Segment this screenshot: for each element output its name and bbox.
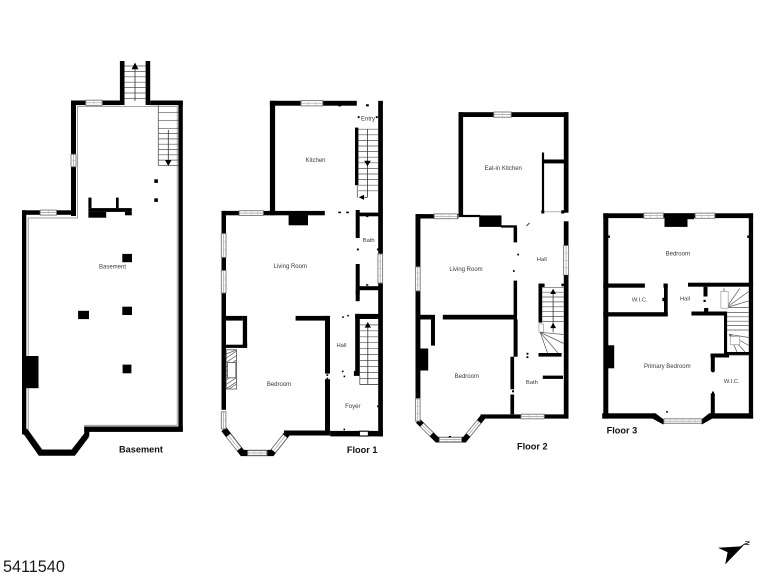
svg-text:Bath: Bath: [526, 380, 538, 386]
svg-text:N: N: [743, 541, 750, 546]
svg-text:Living Room: Living Room: [449, 267, 482, 273]
svg-text:Kitchen: Kitchen: [305, 158, 325, 164]
svg-text:W.I.C.: W.I.C.: [632, 298, 648, 304]
svg-text:Hall: Hall: [680, 297, 690, 303]
svg-text:Bedroom: Bedroom: [455, 374, 479, 380]
svg-text:Hall: Hall: [537, 257, 547, 263]
svg-text:Foyer: Foyer: [345, 404, 360, 410]
svg-text:Bath: Bath: [363, 238, 375, 244]
svg-text:Entry: Entry: [361, 117, 375, 123]
svg-text:Basement: Basement: [99, 265, 126, 271]
svg-text:Bedroom: Bedroom: [666, 252, 690, 258]
svg-text:Primary Bedroom: Primary Bedroom: [644, 364, 691, 370]
svg-text:Floor 2: Floor 2: [517, 441, 548, 451]
svg-text:Eat-in Kitchen: Eat-in Kitchen: [485, 166, 522, 172]
svg-text:Floor 1: Floor 1: [347, 445, 378, 455]
svg-text:W.I.C.: W.I.C.: [724, 379, 740, 385]
svg-text:Floor 3: Floor 3: [607, 426, 638, 436]
svg-text:Bedroom: Bedroom: [267, 382, 291, 388]
svg-text:Living Room: Living Room: [274, 264, 307, 270]
svg-text:5411540: 5411540: [3, 558, 65, 576]
svg-text:Hall: Hall: [337, 343, 347, 349]
svg-text:Basement: Basement: [119, 445, 163, 455]
